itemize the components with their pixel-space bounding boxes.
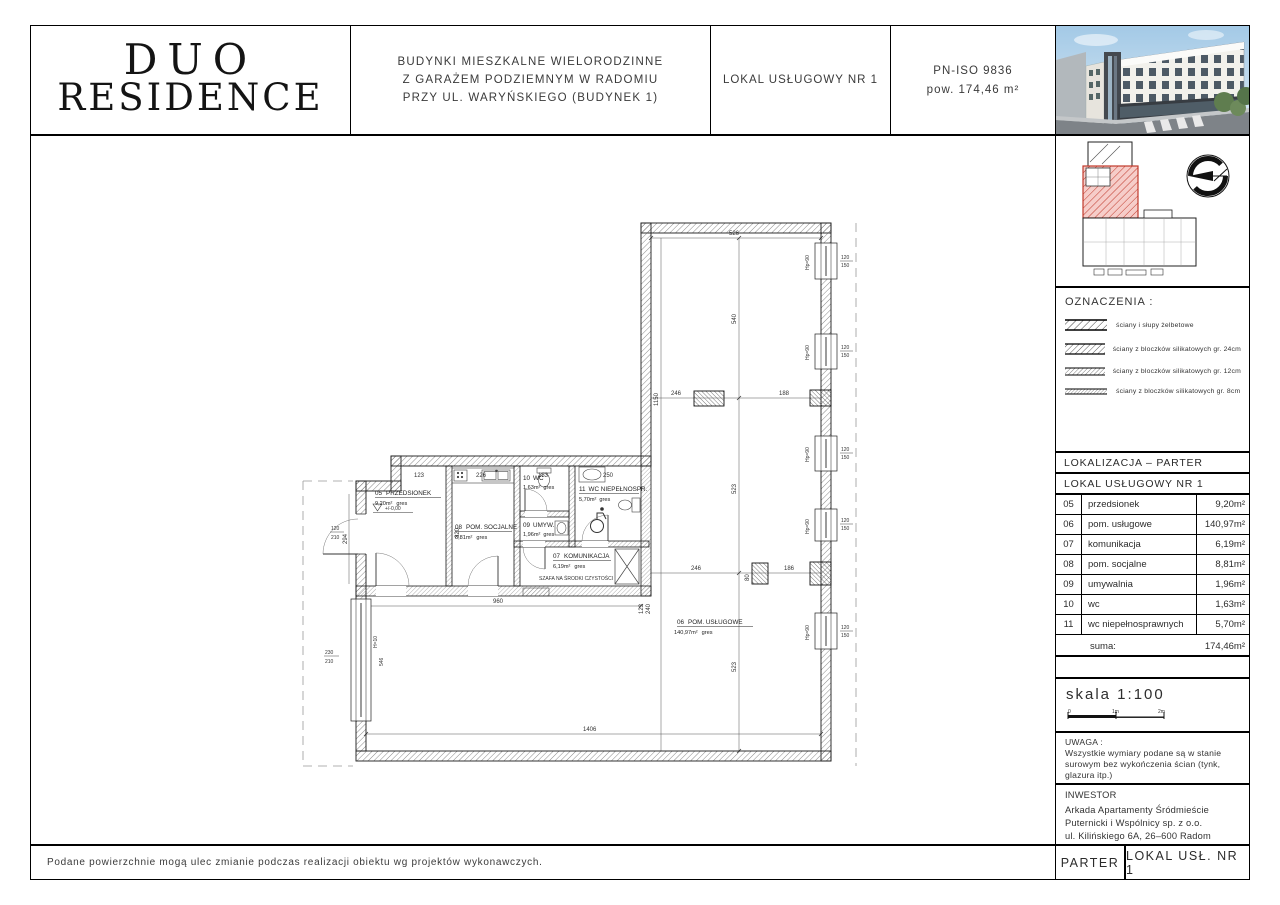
svg-text:1,63m²gres: 1,63m²gres [523,485,555,491]
room-name: UMYW. [533,522,555,529]
floorplan-cell: Hp=90 120 150 Hp=90 120 150 Hp=90 120 15… [30,135,1056,845]
room-no: 05 [1056,495,1082,514]
threshold [523,588,549,596]
svg-text:09UMYW.: 09UMYW. [523,522,555,529]
table-row: 09 umywalnia 1,96m² [1056,575,1249,595]
project-line: PRZY UL. WARYŃSKIEGO (BUDYNEK 1) [403,92,658,104]
room-name: KOMUNIKACJA [564,553,610,560]
room-no: 08 [455,524,463,531]
door-dim: 120 [331,526,340,532]
keyplan-cell [1055,135,1250,287]
window-dim: 150 [841,263,850,269]
table-row: 05 przedsionek 9,20m² [1056,495,1249,515]
legend-cell: OZNACZENIA : ściany i słupy żelbetowe śc… [1055,287,1250,452]
room-area: 8,81m² [1197,555,1249,574]
room-no: 08 [1056,555,1082,574]
window-dim: 150 [841,633,850,639]
uwaga-line: surowym bez wykończenia ścian (tynk, [1065,759,1243,770]
legend-title: OZNACZENIA : [1065,296,1249,308]
investor-line: Arkada Apartamenty Śródmieście [1065,804,1243,817]
logo-line-1: DUO [124,42,258,78]
scale-tick: 1m [1112,709,1119,715]
localization-title: LOKALIZACJA – PARTER [1055,452,1250,473]
spacer-cell [1055,656,1250,678]
room-no: 06 [677,619,685,626]
door-dim: 210 [331,535,340,541]
suma-row: suma: 174,46m² [1056,635,1249,657]
room-area: 6,19m² [553,564,571,570]
svg-text:1,96m²gres: 1,96m²gres [523,532,555,538]
svg-text:06POM. USŁUGOWE: 06POM. USŁUGOWE [677,619,743,626]
unit-subtitle: LOKAL USŁUGOWY NR 1 [1055,473,1250,494]
structural-columns [694,390,831,585]
room-area: 9,20m² [375,501,393,507]
room-name: przedsionek [1082,495,1197,514]
window-sill-label: Hp=90 [805,625,811,640]
room-area: 1,96m² [1197,575,1249,594]
legend-item: ściany z bloczków silikatowych gr. 24cm [1064,342,1241,356]
cleaning-closet [615,549,639,584]
unit-title-cell: LOKAL USŁUGOWY NR 1 [710,25,891,135]
room-area: 1,63m² [1197,595,1249,614]
investor-cell: INWESTOR Arkada Apartamenty Śródmieście … [1055,784,1250,845]
storey-label: PARTER [1061,856,1120,870]
room-label-pom-uslugowe: 06POM. USŁUGOWE 140,97m²gres [674,619,753,636]
window-sill-label: Hp=90 [805,345,811,360]
room-area: 1,96m² [523,532,541,538]
dim-label: 1406 [583,727,597,733]
unit-short-label: LOKAL USŁ. NR 1 [1126,849,1249,877]
table-row: 06 pom. usługowe 140,97m² [1056,515,1249,535]
window-sill-label: Hp=90 [805,519,811,534]
room-label-komunikacja: 07KOMUNIKACJA 6,19m²gres SZAFA NA ŚRODKI… [539,553,613,582]
room-area: 140,97m² [1197,515,1249,534]
dim-label: 523 [732,661,738,672]
room-no: 10 [523,475,531,482]
room-name: POM. USŁUGOWE [688,619,743,626]
building-render-cell [1055,25,1250,135]
total-area: pow. 174,46 m² [927,84,1020,96]
room-label-umywalnia: 09UMYW. 1,96m²gres [523,522,555,538]
svg-text:08POM. SOCJALNE: 08POM. SOCJALNE [455,524,517,531]
dim-label: 123 [414,473,425,479]
room-label-pom-socjalne: 08POM. SOCJALNE 8,81m²gres [455,524,517,541]
legend-label: ściany z bloczków silikatowych gr. 8cm [1116,388,1240,395]
rooms-table: 05 przedsionek 9,20m² 06 pom. usługowe 1… [1055,494,1250,656]
dim-label: 246 [671,391,682,397]
investor-title: INWESTOR [1065,789,1243,802]
svg-text:5,70m²gres: 5,70m²gres [579,497,611,503]
room-area: 6,19m² [1197,535,1249,554]
room-no: 09 [1056,575,1082,594]
svg-text:8,81m²gres: 8,81m²gres [455,535,488,541]
room-name: wc niepełnosprawnych [1082,615,1197,634]
room-name: POM. SOCJALNE [466,524,517,531]
closet-note: SZAFA NA ŚRODKI CZYSTOŚCI [539,574,613,582]
dim-label: 294 [343,533,349,544]
hatch-swatch-24cm [1064,342,1105,356]
window-dim: 120 [841,447,850,453]
room-area: 9,20m² [1197,495,1249,514]
room-name: wc [1082,595,1197,614]
room-no: 11 [579,486,586,493]
svg-text:10WC: 10WC [523,475,544,482]
window-dim: 120 [841,255,850,261]
table-row: 11 wc niepełnosprawnych 5,70m² [1056,615,1249,635]
room-name: pom. socjalne [1082,555,1197,574]
room-name: WC NIEPEŁNOSPR. [589,486,648,493]
svg-text:9,20m²gres: 9,20m²gres [375,501,408,507]
scale-cell: skala 1:100 0 1m 2m [1055,678,1250,732]
drawing-sheet: DUO RESIDENCE BUDYNKI MIESZKALNE WIELORO… [0,0,1280,905]
project-line: Z GARAŻEM PODZIEMNYM W RADOMIU [403,74,659,86]
room-floor: gres [574,564,585,570]
window-dim: 120 [841,518,850,524]
room-name: umywalnia [1082,575,1197,594]
room-area: 140,97m² [674,630,698,636]
room-floor: gres [543,485,554,491]
room-no: 11 [1056,615,1082,634]
svg-text:07KOMUNIKACJA: 07KOMUNIKACJA [553,553,610,560]
dim-label: 246 [691,566,702,572]
legend-label: ściany i słupy żelbetowe [1116,322,1194,329]
table-row: 08 pom. socjalne 8,81m² [1056,555,1249,575]
room-name: PRZEDSIONEK [386,490,432,497]
standard-cell: PN-ISO 9836 pow. 174,46 m² [890,25,1056,135]
dim-label: 540 [732,313,738,324]
table-row: 07 komunikacja 6,19m² [1056,535,1249,555]
room-labels: 05PRZEDSIONEK 9,20m²gres 06POM. USŁUGOWE… [375,475,753,636]
investor-line: Puternicki i Wspólnicy sp. z o.o. [1065,817,1243,830]
uwaga-title: UWAGA : [1065,737,1243,748]
room-floor: gres [702,630,713,636]
window-dim: 210 [325,659,334,665]
window-dim: 150 [841,526,850,532]
window-dim: 546 [379,657,385,666]
suma-value: 174,46m² [1189,635,1249,657]
window-sill-label: H=10 [373,636,379,648]
uwaga-line: Wszystkie wymiary podane są w stanie [1065,748,1243,759]
window-sill-label: Hp=90 [805,255,811,270]
svg-text:140,97m²gres: 140,97m²gres [674,630,713,636]
unit-short-cell: LOKAL USŁ. NR 1 [1125,845,1250,880]
room-no: 09 [523,522,531,529]
dim-label: 526 [729,231,740,237]
dim-label: 80 [745,574,751,581]
scale-bar: 0 1m 2m [1066,706,1176,724]
legend-label: ściany z bloczków silikatowych gr. 24cm [1113,346,1241,353]
svg-text:11WC NIEPEŁNOSPR.: 11WC NIEPEŁNOSPR. [579,486,648,493]
legend-item: ściany z bloczków silikatowych gr. 8cm [1064,387,1241,396]
room-no: 10 [1056,595,1082,614]
legend-item: ściany z bloczków silikatowych gr. 12cm [1064,366,1241,377]
floorplan-drawing: Hp=90 120 150 Hp=90 120 150 Hp=90 120 15… [31,136,1055,844]
window-sill-label: Hp=90 [805,447,811,462]
project-description: BUDYNKI MIESZKALNE WIELORODZINNE Z GARAŻ… [350,25,711,135]
hatch-swatch-8cm [1064,387,1108,396]
room-no: 07 [1056,535,1082,554]
dim-label: 123 [639,603,645,614]
room-no: 05 [375,490,383,497]
window-dim: 150 [841,353,850,359]
standard-code: PN-ISO 9836 [933,65,1012,77]
room-name: komunikacja [1082,535,1197,554]
footer-note-bar: Podane powierzchnie mogą ulec zmianie po… [30,845,1056,880]
logo-block: DUO RESIDENCE [30,25,351,135]
compass-icon [1187,155,1229,197]
table-row: 10 wc 1,63m² [1056,595,1249,615]
window-dim: 150 [841,455,850,461]
dim-label: 523 [732,483,738,494]
investor-line: ul. Kilińskiego 6A, 26–600 Radom [1065,830,1243,843]
room-area: 5,70m² [1197,615,1249,634]
dim-label: 226 [476,473,487,479]
room-area: 5,70m² [579,497,597,503]
room-name: pom. usługowe [1082,515,1197,534]
hatch-swatch-concrete [1064,318,1108,332]
dim-label: 960 [493,599,504,605]
dim-label: 186 [784,566,795,572]
unit-title: LOKAL USŁUGOWY NR 1 [723,74,878,86]
room-floor: gres [543,532,554,538]
washbasin-umywalnia [555,521,568,535]
uwaga-cell: UWAGA : Wszystkie wymiary podane są w st… [1055,732,1250,784]
storey-cell: PARTER [1055,845,1125,880]
room-floor: gres [599,497,610,503]
dim-label: 240 [646,603,652,614]
room-area: 8,81m² [455,535,473,541]
room-area: 1,63m² [523,485,541,491]
room-name: WC [533,475,544,482]
legend-label: ściany z bloczków silikatowych gr. 12cm [1113,368,1241,375]
legend-item: ściany i słupy żelbetowe [1064,318,1241,332]
room-floor: gres [476,535,487,541]
unit-subtitle-text: LOKAL USŁUGOWY NR 1 [1064,478,1204,490]
window-dim: 230 [325,650,334,656]
room-floor: gres [396,501,407,507]
building-render-image [1056,26,1249,134]
room-label-przedsionek: 05PRZEDSIONEK 9,20m²gres [375,490,441,507]
localization-text: LOKALIZACJA – PARTER [1064,457,1203,469]
project-line: BUDYNKI MIESZKALNE WIELORODZINNE [398,56,664,68]
window-dim: 120 [841,345,850,351]
footer-note-text: Podane powierzchnie mogą ulec zmianie po… [47,857,543,868]
window-dim: 120 [841,625,850,631]
dim-label: 188 [779,391,790,397]
scale-label: skala 1:100 [1066,686,1249,703]
keyplan-map [1056,136,1249,286]
suma-label: suma: [1056,635,1189,657]
svg-text:6,19m²gres: 6,19m²gres [553,564,586,570]
hatch-swatch-12cm [1064,366,1105,377]
uwaga-line: glazura itp.) [1065,770,1243,781]
window-left-wall: 230 210 H=10 546 [324,599,385,721]
dimension-ticks [364,236,823,753]
logo-line-2: RESIDENCE [57,78,323,118]
room-no: 07 [553,553,561,560]
room-no: 06 [1056,515,1082,534]
dim-label: 250 [603,473,614,479]
dim-label: 1150 [654,392,660,406]
